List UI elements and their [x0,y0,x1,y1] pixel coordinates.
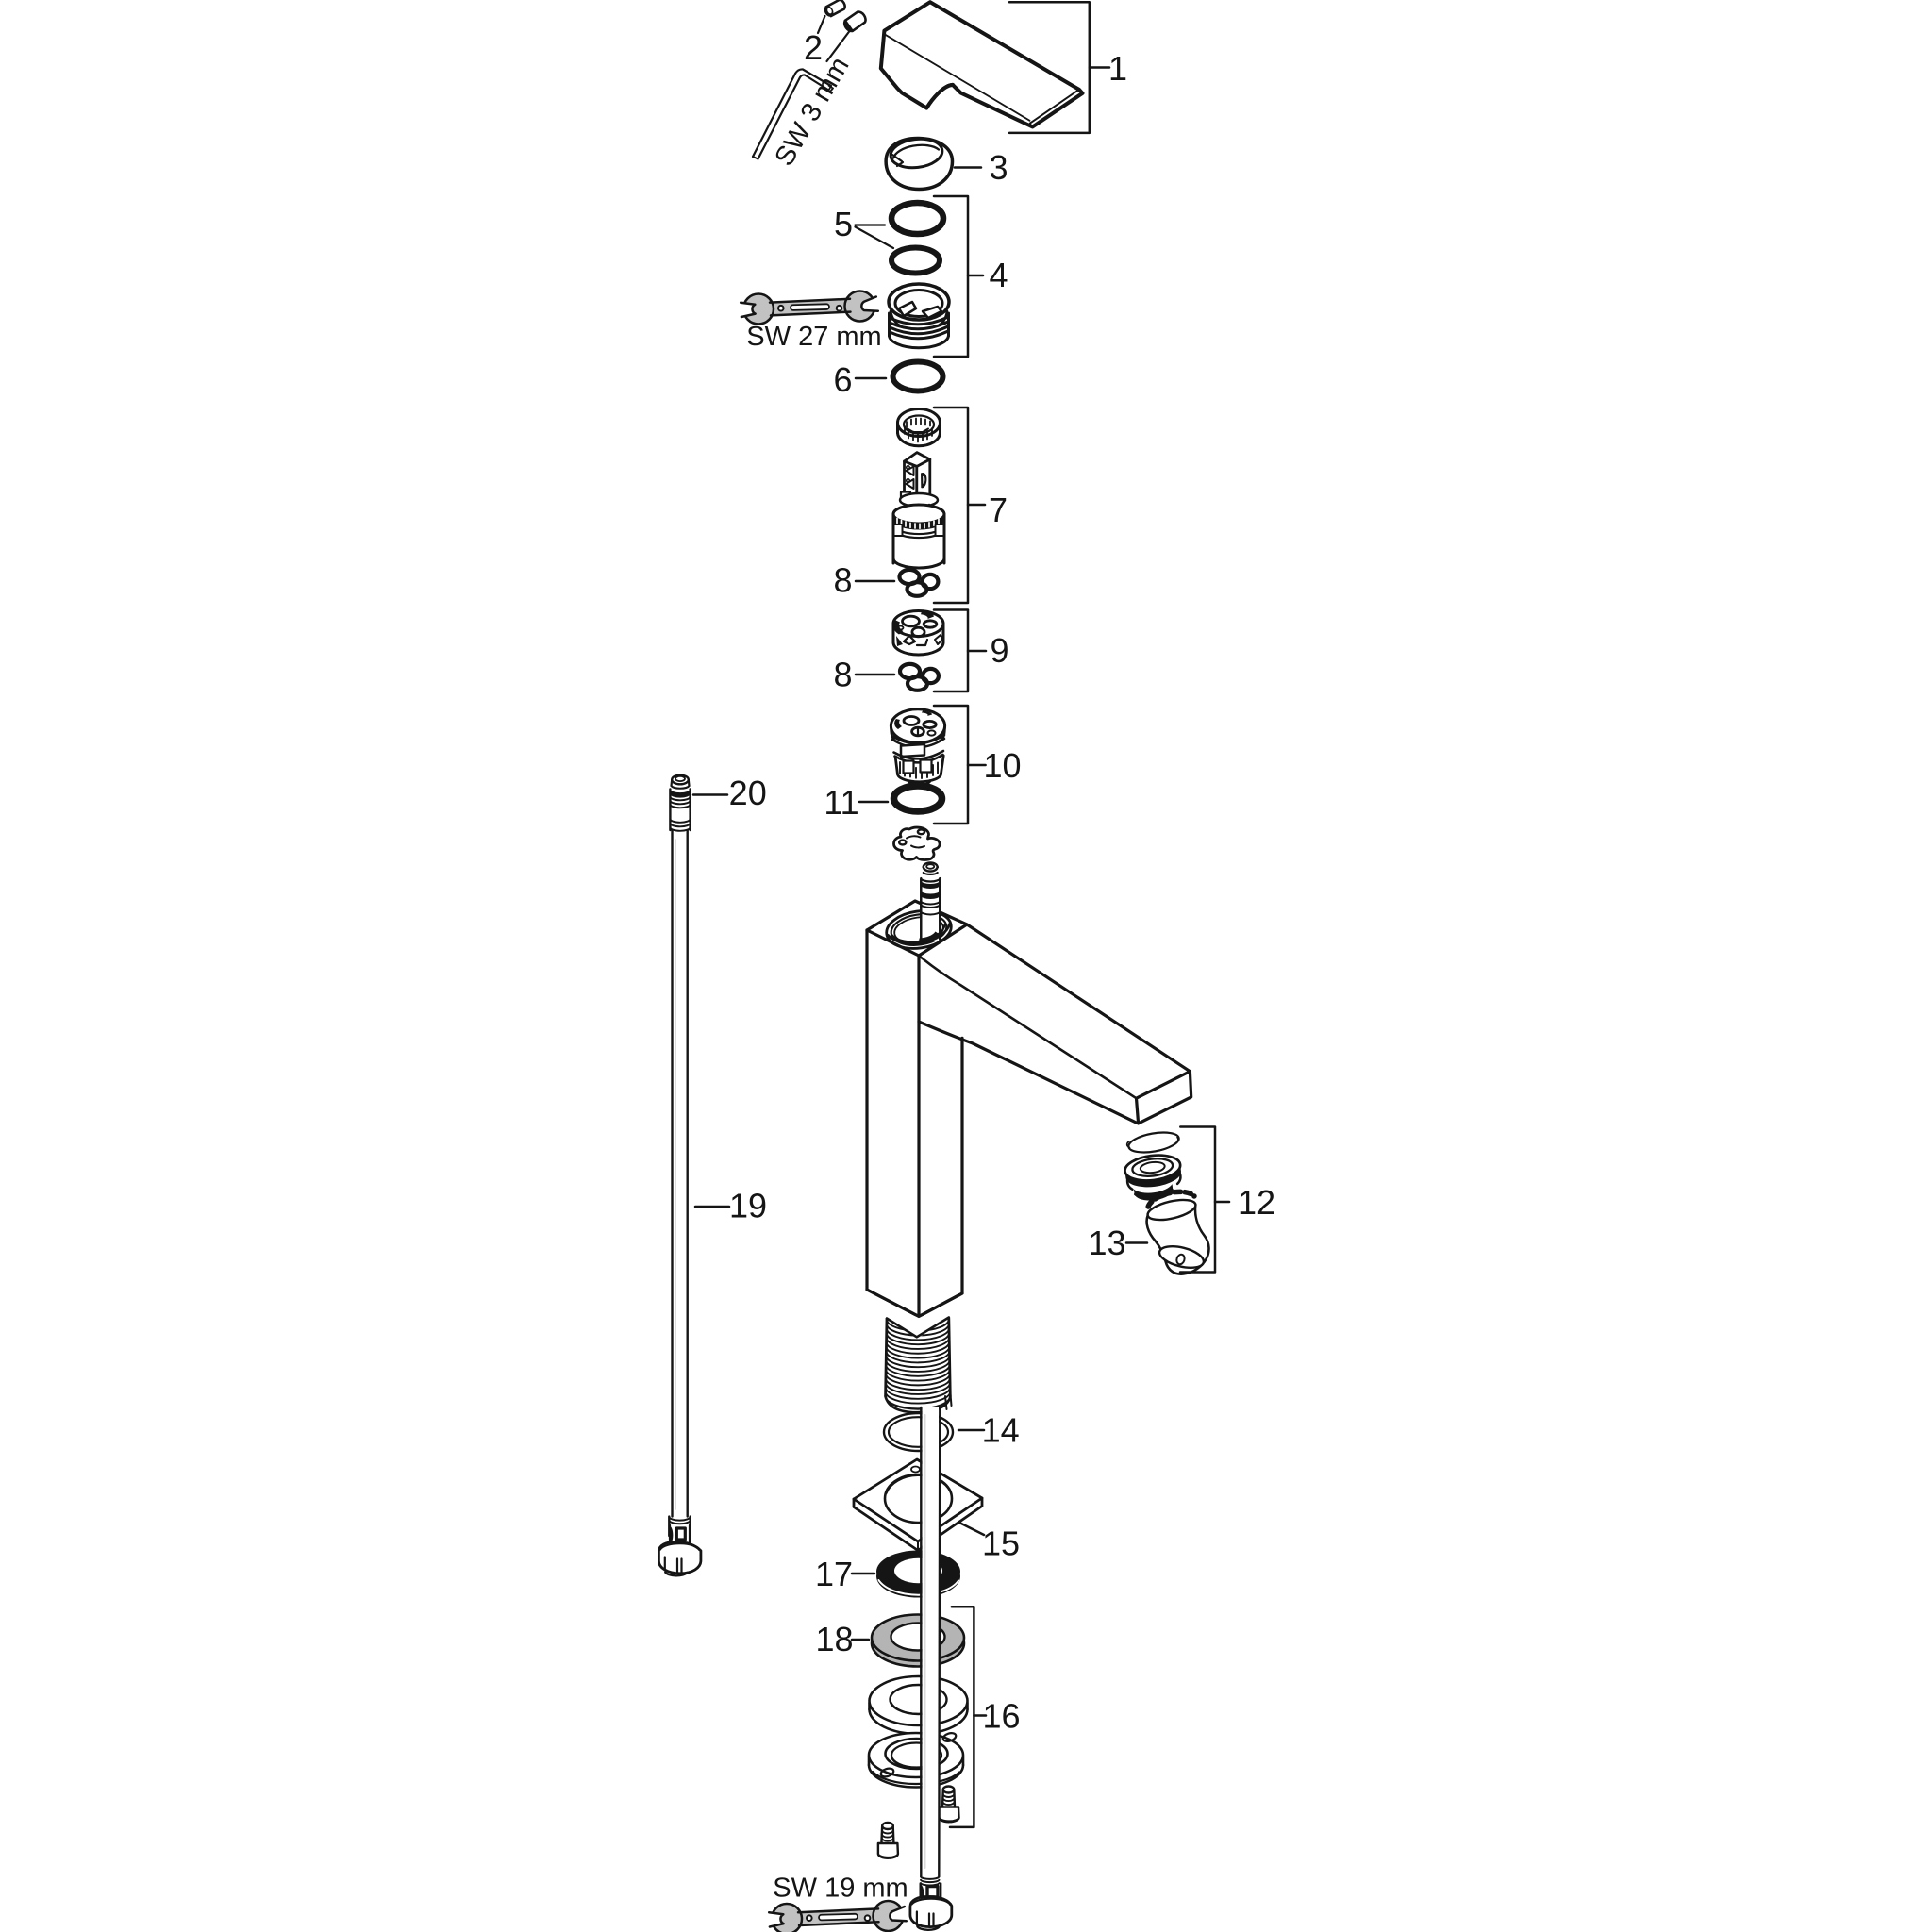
svg-text:12: 12 [1238,1183,1275,1222]
svg-text:7: 7 [989,491,1008,529]
svg-text:14: 14 [982,1411,1020,1450]
svg-text:17: 17 [815,1555,853,1593]
svg-text:5: 5 [834,205,853,243]
svg-text:SW 19 mm: SW 19 mm [773,1874,908,1904]
svg-text:10: 10 [983,746,1021,785]
svg-text:SW 27 mm: SW 27 mm [746,322,881,352]
svg-text:8: 8 [833,561,852,600]
svg-text:11: 11 [824,783,858,822]
svg-text:4: 4 [989,256,1008,294]
svg-text:3: 3 [989,148,1008,187]
svg-text:18: 18 [815,1620,853,1658]
svg-text:13: 13 [1088,1224,1125,1262]
svg-text:2: 2 [804,28,823,67]
svg-text:15: 15 [982,1524,1020,1563]
svg-text:1: 1 [1108,49,1127,88]
svg-text:6: 6 [833,360,852,399]
svg-text:9: 9 [990,631,1008,670]
svg-text:19: 19 [729,1187,767,1225]
svg-text:20: 20 [729,774,767,812]
svg-text:16: 16 [982,1697,1020,1736]
svg-text:8: 8 [833,656,852,694]
